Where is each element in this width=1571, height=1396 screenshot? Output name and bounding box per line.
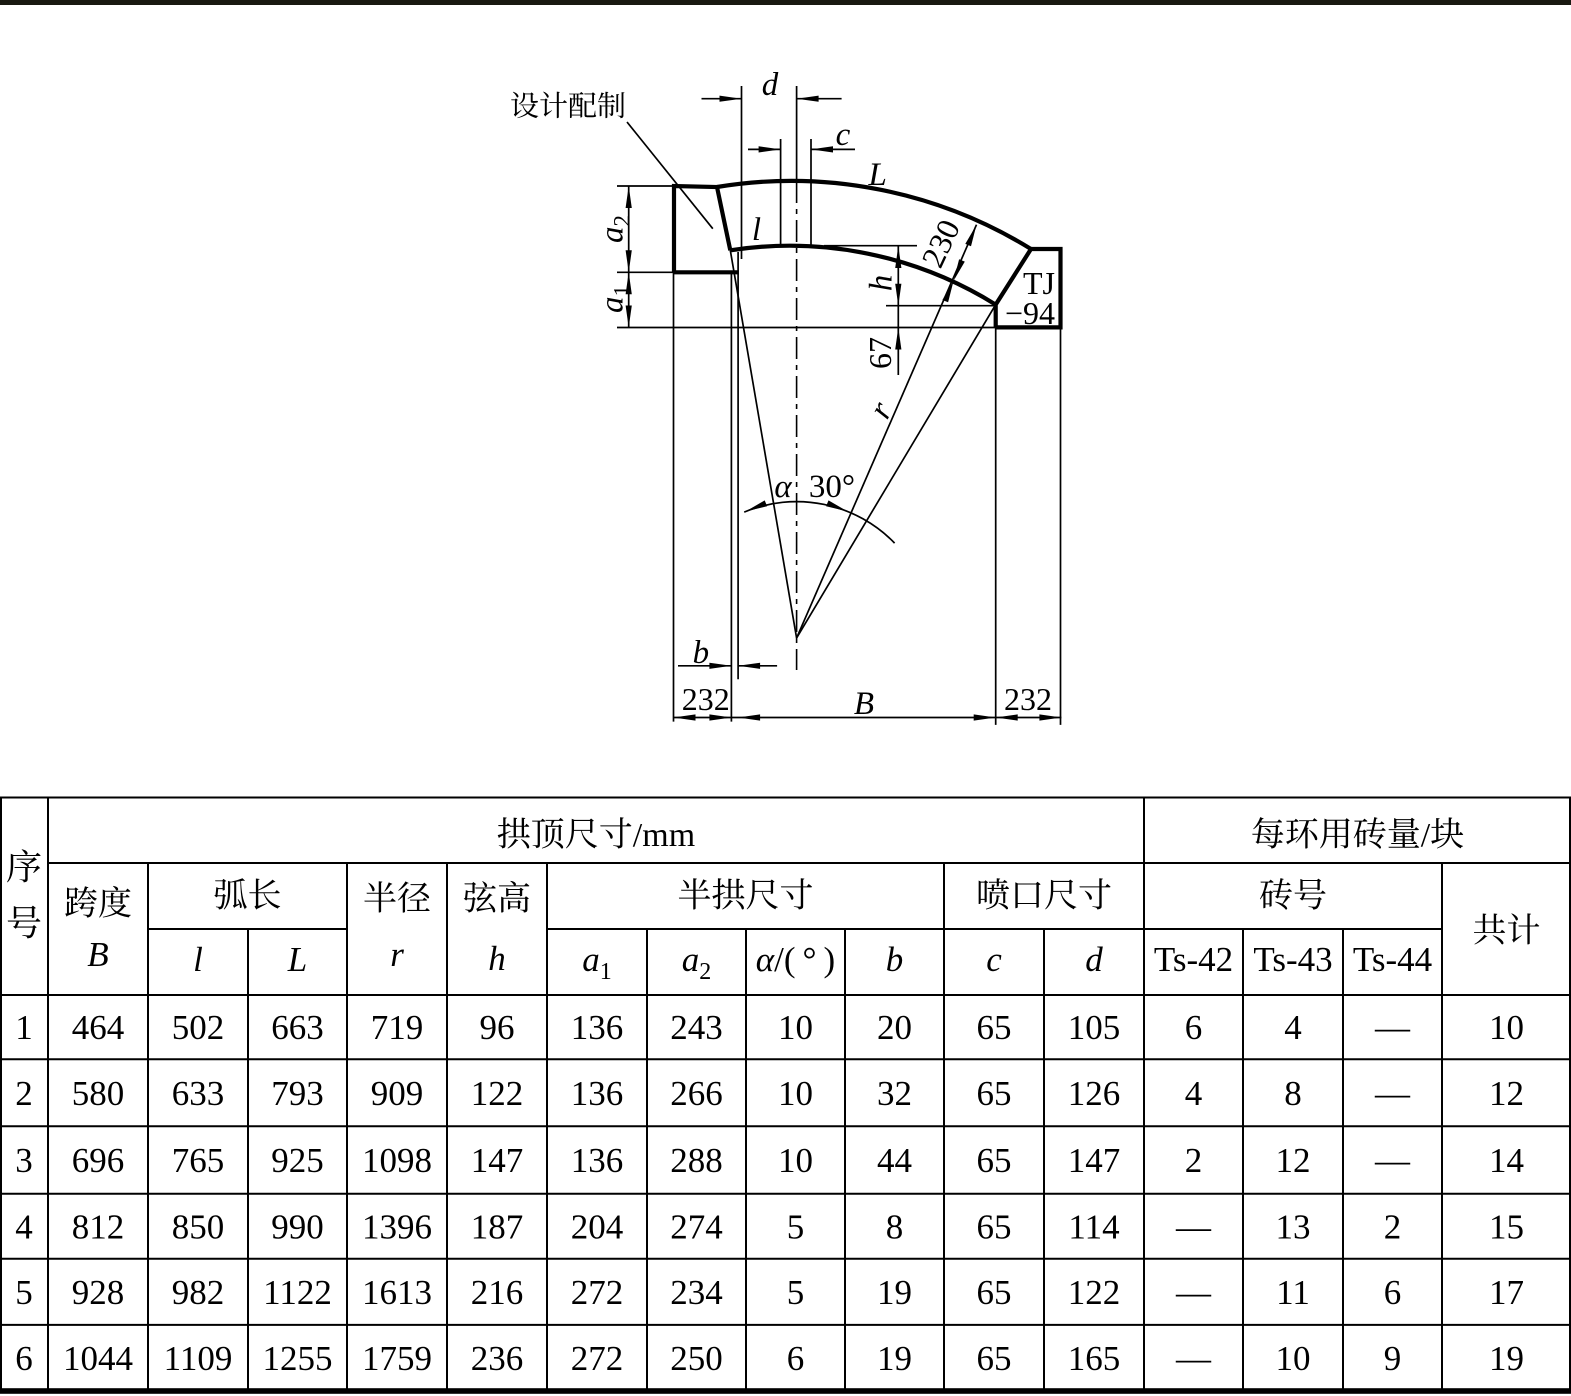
svg-text:1255: 1255 [263, 1339, 333, 1378]
svg-text:232: 232 [1004, 681, 1052, 717]
svg-text:B: B [854, 686, 874, 722]
svg-text:−94: −94 [1005, 295, 1055, 331]
svg-text:12: 12 [1489, 1074, 1524, 1113]
svg-text:11: 11 [1276, 1273, 1310, 1312]
svg-text:122: 122 [471, 1074, 524, 1113]
svg-text:1: 1 [15, 1008, 33, 1047]
svg-text:502: 502 [172, 1008, 225, 1047]
svg-text:1396: 1396 [362, 1207, 432, 1246]
svg-text:a2: a2 [595, 215, 635, 243]
svg-text:96: 96 [480, 1008, 515, 1047]
svg-text:32: 32 [877, 1074, 912, 1113]
svg-text:1109: 1109 [164, 1339, 233, 1378]
svg-text:633: 633 [172, 1074, 225, 1113]
svg-text:L: L [287, 940, 307, 979]
svg-text:187: 187 [471, 1207, 524, 1246]
svg-text:1613: 1613 [362, 1273, 432, 1312]
svg-text:765: 765 [172, 1141, 225, 1180]
svg-text:a2: a2 [682, 940, 712, 985]
svg-text:b: b [886, 940, 904, 979]
svg-text:580: 580 [72, 1074, 125, 1113]
svg-text:65: 65 [977, 1273, 1012, 1312]
svg-text:982: 982 [172, 1273, 225, 1312]
svg-text:/mm: /mm [633, 817, 695, 854]
svg-text:a1: a1 [582, 940, 612, 985]
svg-text:928: 928 [72, 1273, 125, 1312]
svg-text:19: 19 [1489, 1339, 1524, 1378]
svg-text:d: d [1085, 940, 1103, 979]
svg-text:204: 204 [571, 1207, 624, 1246]
svg-text:10: 10 [1276, 1339, 1311, 1378]
svg-text:1044: 1044 [63, 1339, 133, 1378]
svg-text:2: 2 [1185, 1141, 1203, 1180]
svg-text:65: 65 [977, 1008, 1012, 1047]
svg-text:65: 65 [977, 1207, 1012, 1246]
svg-text:4: 4 [1284, 1008, 1302, 1047]
svg-text:—: — [1374, 1141, 1411, 1180]
svg-text:10: 10 [778, 1141, 813, 1180]
svg-text:272: 272 [571, 1339, 624, 1378]
svg-text:19: 19 [877, 1273, 912, 1312]
svg-text:Ts-44: Ts-44 [1353, 940, 1432, 979]
svg-text:17: 17 [1489, 1273, 1524, 1312]
svg-text:250: 250 [670, 1339, 723, 1378]
svg-text:232: 232 [682, 681, 730, 717]
svg-text:b: b [693, 635, 710, 671]
svg-text:147: 147 [471, 1141, 524, 1180]
svg-text:4: 4 [15, 1207, 33, 1246]
svg-text:Ts-42: Ts-42 [1154, 940, 1233, 979]
svg-text:136: 136 [571, 1141, 624, 1180]
svg-text:B: B [87, 935, 108, 974]
svg-text:α/(°): α/(°) [756, 940, 835, 979]
svg-text:19: 19 [877, 1339, 912, 1378]
svg-text:812: 812 [72, 1207, 125, 1246]
svg-text:2: 2 [1384, 1207, 1402, 1246]
svg-text:20: 20 [877, 1008, 912, 1047]
svg-text:5: 5 [15, 1273, 33, 1312]
svg-text:/: / [1421, 817, 1431, 854]
svg-text:L: L [868, 157, 887, 193]
svg-text:65: 65 [977, 1141, 1012, 1180]
svg-text:67: 67 [862, 337, 898, 369]
svg-text:274: 274 [670, 1207, 723, 1246]
svg-text:3: 3 [15, 1141, 33, 1180]
svg-text:266: 266 [670, 1074, 723, 1113]
svg-text:c: c [836, 117, 851, 153]
svg-text:114: 114 [1068, 1207, 1119, 1246]
svg-text:136: 136 [571, 1008, 624, 1047]
svg-text:14: 14 [1489, 1141, 1524, 1180]
svg-text:2: 2 [15, 1074, 33, 1113]
svg-text:—: — [1374, 1074, 1411, 1113]
svg-text:5: 5 [787, 1273, 805, 1312]
svg-text:6: 6 [1185, 1008, 1203, 1047]
svg-text:6: 6 [787, 1339, 805, 1378]
svg-text:105: 105 [1068, 1008, 1121, 1047]
svg-text:65: 65 [977, 1074, 1012, 1113]
svg-text:6: 6 [15, 1339, 33, 1378]
svg-text:h: h [864, 275, 900, 292]
svg-text:663: 663 [271, 1008, 324, 1047]
svg-text:236: 236 [471, 1339, 524, 1378]
svg-text:1098: 1098 [362, 1141, 432, 1180]
svg-text:h: h [488, 939, 506, 978]
svg-text:1122: 1122 [263, 1273, 332, 1312]
svg-text:a1: a1 [595, 285, 635, 313]
svg-text:c: c [986, 940, 1002, 979]
svg-text:—: — [1175, 1207, 1212, 1246]
svg-text:d: d [762, 67, 779, 103]
svg-text:l: l [193, 940, 203, 979]
svg-text:10: 10 [778, 1008, 813, 1047]
svg-text:288: 288 [670, 1141, 723, 1180]
svg-text:272: 272 [571, 1273, 624, 1312]
svg-text:6: 6 [1384, 1273, 1402, 1312]
svg-text:165: 165 [1068, 1339, 1121, 1378]
svg-text:464: 464 [72, 1008, 125, 1047]
svg-text:990: 990 [271, 1207, 324, 1246]
svg-text:9: 9 [1384, 1339, 1402, 1378]
svg-text:136: 136 [571, 1074, 624, 1113]
svg-text:—: — [1175, 1273, 1212, 1312]
svg-text:65: 65 [977, 1339, 1012, 1378]
svg-text:30°: 30° [809, 469, 855, 505]
svg-text:793: 793 [271, 1074, 324, 1113]
svg-text:243: 243 [670, 1008, 723, 1047]
svg-text:925: 925 [271, 1141, 324, 1180]
svg-text:5: 5 [787, 1207, 805, 1246]
svg-text:8: 8 [1284, 1074, 1302, 1113]
svg-text:216: 216 [471, 1273, 524, 1312]
svg-text:719: 719 [371, 1008, 424, 1047]
svg-text:1759: 1759 [362, 1339, 432, 1378]
svg-text:44: 44 [877, 1141, 912, 1180]
svg-text:234: 234 [670, 1273, 723, 1312]
svg-text:122: 122 [1068, 1273, 1121, 1312]
svg-text:10: 10 [778, 1074, 813, 1113]
svg-text:15: 15 [1489, 1207, 1524, 1246]
svg-text:850: 850 [172, 1207, 225, 1246]
svg-text:r: r [390, 935, 404, 974]
svg-text:147: 147 [1068, 1141, 1121, 1180]
svg-text:12: 12 [1276, 1141, 1311, 1180]
svg-text:10: 10 [1489, 1008, 1524, 1047]
svg-text:4: 4 [1185, 1074, 1203, 1113]
svg-text:696: 696 [72, 1141, 125, 1180]
svg-text:126: 126 [1068, 1074, 1121, 1113]
svg-text:l: l [752, 212, 761, 248]
svg-text:α: α [774, 469, 792, 505]
svg-text:Ts-43: Ts-43 [1253, 940, 1332, 979]
svg-text:13: 13 [1276, 1207, 1311, 1246]
svg-text:909: 909 [371, 1074, 424, 1113]
svg-text:—: — [1374, 1008, 1411, 1047]
svg-text:8: 8 [886, 1207, 904, 1246]
svg-text:—: — [1175, 1339, 1212, 1378]
svg-text:r: r [862, 396, 900, 424]
